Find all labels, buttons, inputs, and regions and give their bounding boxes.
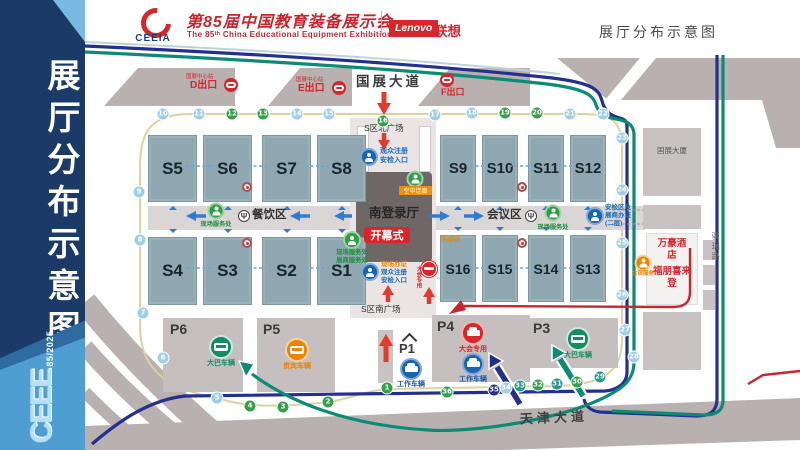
hall-label: S4 (162, 261, 183, 281)
hall-s16: S16 (440, 235, 476, 302)
route-stop-15: 15 (323, 108, 336, 121)
hall-s8: S8 (317, 135, 366, 202)
p1-work-label: 工作车辆 (389, 381, 433, 389)
hall-s15: S15 (482, 235, 518, 302)
route-stop-8: 8 (134, 234, 147, 247)
registration-icon-north (360, 148, 378, 166)
reg-south-line1: 观众注册 (381, 269, 407, 276)
bus-icon-p3 (566, 327, 590, 351)
service-desk-icon (343, 231, 361, 249)
north-road-label: 国展大道 (356, 74, 422, 90)
hall-label: S13 (576, 261, 601, 277)
route-stop-24: 24 (616, 184, 629, 197)
parking-p3-label: P3 (533, 320, 550, 336)
route-stop-6: 6 (157, 352, 170, 365)
hall-s9: S9 (440, 135, 476, 202)
exhibition-map-page: S5 S6 S7 S8 S9 S10 S11 S12 S4 S3 S2 S1 S… (0, 0, 800, 450)
east-road-label: 骥瑞路 (711, 232, 720, 262)
security-line1: 安检区及 (605, 204, 631, 211)
skybridge-label: 空中连廊 (399, 186, 432, 195)
registration-icon-south (361, 263, 379, 281)
annex-block (643, 205, 701, 229)
parking-p1-label: P1 (399, 342, 415, 357)
reg-north-line1: 观众注册 (380, 148, 408, 156)
bus-glyph (571, 335, 585, 343)
car-icon-p4-dedicated (461, 321, 485, 345)
route-stop-10: 10 (157, 108, 170, 121)
metro-exit-f: F出口 (441, 87, 465, 97)
car-icon-p1 (400, 358, 422, 380)
bus-icon-p5 (285, 338, 309, 362)
service-west-label: 现场服务处 (195, 221, 237, 228)
bus-glyph (214, 343, 228, 351)
hall-label: S6 (217, 159, 238, 179)
reg-north-line2: 安检入口 (380, 157, 408, 165)
hotel-b-label: 福朋喜来登 (652, 266, 692, 291)
route-stop-35: 35 (488, 384, 501, 397)
person-icon (365, 153, 373, 162)
route-stop-14: 14 (291, 108, 304, 121)
hall-label: S15 (488, 261, 513, 277)
route-stop-30: 30 (571, 376, 584, 389)
metro-icon (440, 73, 454, 87)
meeting-area-icon: Ψ (525, 210, 537, 222)
route-stop-2: 2 (322, 396, 335, 409)
skybridge-icon (407, 171, 424, 188)
east-strip-block (703, 290, 715, 310)
dining-area-label: 餐饮区 (252, 209, 287, 222)
security-line3: (二层) (605, 220, 622, 227)
route-stop-12: 12 (226, 108, 239, 121)
hall-label: S10 (487, 160, 514, 177)
hall-label: S5 (162, 159, 183, 179)
parking-p4-label: P4 (437, 318, 454, 334)
south-road-label: 天津大道 (520, 410, 589, 428)
tower-label: 国展大厦 (645, 147, 699, 156)
route-stop-28: 28 (628, 351, 641, 364)
marker-target-icon (517, 238, 527, 248)
banner-vertical-title: 展厅分布示意图 (0, 50, 85, 360)
route-stop-34: 34 (500, 382, 513, 395)
hall-s12: S12 (570, 135, 606, 202)
entry-lane (378, 330, 393, 383)
activity-zone-label: 活动区 (440, 236, 461, 244)
hall-s2: S2 (262, 237, 311, 305)
person-icon (411, 175, 419, 184)
marker-target-icon (242, 238, 252, 248)
hall-s7: S7 (262, 135, 311, 202)
car-glyph (405, 366, 418, 372)
opening-ceremony-badge: 开幕式 (364, 227, 410, 243)
service-desk-icon-east (545, 205, 562, 222)
left-banner: 展厅分布示意图 CEEE 85/2025 (0, 0, 85, 450)
route-stop-7: 7 (137, 307, 150, 320)
route-stop-29: 29 (594, 371, 607, 384)
route-stop-27: 27 (619, 324, 632, 337)
south-annex-block (643, 312, 701, 370)
hall-s5: S5 (148, 135, 197, 202)
person-icon (348, 236, 356, 245)
hall-s1: S1 (317, 237, 366, 305)
security-line2: 展商办证 (605, 212, 631, 219)
route-stop-5: 5 (211, 392, 224, 405)
route-stop-36: 36 (441, 386, 454, 399)
route-stop-31: 31 (551, 378, 564, 391)
hotel-service-label: 住宿服务 (629, 271, 657, 277)
car-glyph (467, 330, 480, 336)
bus-icon-p6 (209, 335, 233, 359)
marker-target-icon (517, 182, 527, 192)
route-stop-17: 17 (429, 109, 442, 122)
p5-type-label: 贵宾车辆 (275, 363, 319, 371)
hall-s11: S11 (528, 135, 564, 202)
route-stop-11: 11 (193, 108, 206, 121)
car-icon-p4-work (462, 353, 484, 375)
hall-s14: S14 (528, 235, 564, 302)
reg-south-line2: 安检入口 (381, 277, 407, 284)
p4-work-label: 工作车辆 (451, 376, 495, 384)
hall-label: S16 (446, 261, 471, 277)
person-icon (549, 209, 557, 218)
hall-label: S3 (217, 261, 238, 281)
car-glyph (467, 361, 480, 367)
hotel-a-label: 万豪酒店 (655, 238, 689, 263)
person-icon (639, 259, 647, 268)
parking-p5-label: P5 (263, 321, 280, 337)
route-stop-26: 26 (616, 289, 629, 302)
hall-label: S2 (276, 261, 297, 281)
service-line1: 现场服务处 (329, 249, 375, 256)
route-stop-23: 23 (616, 132, 629, 145)
hall-label: S9 (449, 160, 467, 177)
hall-label: S11 (533, 160, 559, 177)
route-stop-9: 9 (133, 186, 146, 199)
service-desk-icon-west (208, 203, 225, 220)
route-stop-22: 22 (597, 108, 610, 121)
route-stop-3: 3 (277, 401, 290, 414)
route-stop-13: 13 (257, 108, 270, 121)
hall-label: S12 (575, 160, 602, 177)
metro-icon (224, 78, 238, 92)
p3-type-label: 大巴车辆 (556, 352, 600, 360)
hall-s6: S6 (203, 135, 252, 202)
parking-p6-label: P6 (170, 321, 187, 337)
hall-label: S7 (276, 159, 297, 179)
hall-label: S8 (331, 159, 352, 179)
no-entry-icon (421, 261, 437, 277)
escalator-strip-east (419, 126, 431, 172)
marker-target-icon (242, 182, 252, 192)
hall-s13: S13 (570, 235, 606, 302)
route-stop-25: 25 (616, 237, 629, 250)
p6-type-label: 大巴车辆 (199, 360, 243, 368)
metro-icon (332, 81, 346, 95)
person-icon (212, 207, 220, 216)
metro-exit-e: E出口 (298, 83, 325, 95)
login-hall-label: 南登录厅 (356, 206, 432, 220)
route-stop-20: 20 (531, 107, 544, 120)
route-stop-32: 32 (532, 379, 545, 392)
person-icon (366, 268, 374, 277)
hall-s10: S10 (482, 135, 518, 202)
ceee-logo-text: CEEE (25, 370, 59, 444)
meeting-area-label: 会议区 (487, 209, 522, 222)
hotel-service-icon (635, 255, 652, 272)
south-plaza-label: S区南广场 (361, 305, 401, 315)
east-strip-block (703, 265, 715, 285)
vip-only-label: 大会专用 (415, 266, 421, 288)
route-stop-33: 33 (514, 380, 527, 393)
hall-s4: S4 (148, 237, 197, 305)
hall-label: S14 (534, 261, 559, 277)
person-icon (591, 212, 599, 221)
tower-block (643, 128, 701, 196)
bus-glyph (290, 346, 304, 354)
dining-icon: Ψ (238, 210, 250, 222)
route-stop-18: 18 (466, 107, 479, 120)
security-icon-east (586, 207, 604, 225)
metro-exit-d: D出口 (190, 80, 217, 92)
route-stop-19: 19 (499, 107, 512, 120)
route-stop-4: 4 (244, 400, 257, 413)
route-stop-21: 21 (564, 108, 577, 121)
route-stop-16: 16 (377, 115, 390, 128)
ceee-logo-year: 85/2025 (45, 331, 59, 367)
route-stop-1: 1 (381, 382, 394, 395)
service-east-label: 现场服务处 (532, 224, 574, 231)
ceee-logo: CEEE 85/2025 (25, 331, 59, 443)
onsite-badge-label: 现场办证 (381, 261, 407, 268)
